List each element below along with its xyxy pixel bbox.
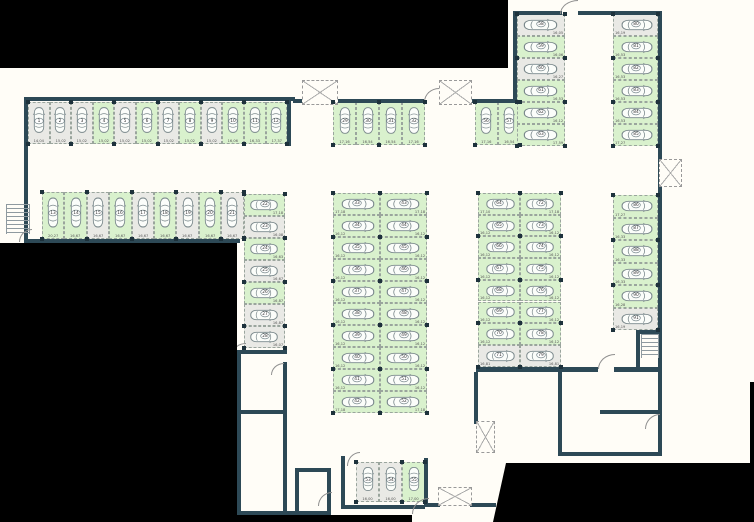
column-marker <box>285 100 289 104</box>
parking-space-79[interactable]: 7916,81 <box>520 345 561 367</box>
parking-space-34[interactable]: 3416,12 <box>333 215 380 237</box>
parking-space-26[interactable]: 2616,87 <box>244 282 285 304</box>
parking-space-75[interactable]: 7516,12 <box>520 258 561 280</box>
parking-space-87[interactable]: 8716,33 <box>613 218 658 241</box>
column-marker <box>656 193 660 197</box>
column-marker <box>283 236 287 240</box>
space-number: 67 <box>494 265 503 271</box>
masked-region <box>493 463 754 522</box>
space-dimension: 16,12 <box>480 319 490 323</box>
column-marker <box>515 100 519 104</box>
space-number: 64 <box>494 200 503 206</box>
column-marker <box>425 323 429 327</box>
parking-space-48[interactable]: 4816,12 <box>380 303 427 325</box>
space-dimension: 15,02 <box>163 139 175 143</box>
column-marker <box>563 144 567 148</box>
space-number: 1 <box>34 118 43 124</box>
parking-space-47[interactable]: 4716,12 <box>380 281 427 303</box>
column-marker <box>283 346 287 350</box>
parking-space-16[interactable]: 1616,67 <box>109 192 131 239</box>
space-number: 55 <box>409 477 418 483</box>
space-number: 41 <box>352 376 361 382</box>
parking-space-37[interactable]: 3716,12 <box>333 281 380 303</box>
parking-space-40[interactable]: 4016,12 <box>333 347 380 369</box>
wall <box>295 468 329 472</box>
space-dimension: 17,10 <box>480 210 490 214</box>
section-col-80-85: 8016,198116,538216,538316,538416,538517,… <box>613 14 658 146</box>
parking-space-25[interactable]: 2516,67 <box>244 260 285 282</box>
column-marker <box>112 142 116 146</box>
space-dimension: 16,12 <box>415 364 425 368</box>
parking-space-38[interactable]: 3816,12 <box>333 303 380 325</box>
parking-space-83[interactable]: 8316,53 <box>613 80 658 102</box>
column-marker <box>423 100 427 104</box>
space-dimension: 16,27 <box>553 75 563 79</box>
space-dimension: 17,18 <box>273 211 283 215</box>
column-marker <box>611 144 615 148</box>
parking-space-21[interactable]: 2116,67 <box>221 192 243 239</box>
space-number: 86 <box>631 202 640 208</box>
space-dimension: 16,12 <box>480 275 490 279</box>
space-dimension: 15,02 <box>141 139 153 143</box>
column-marker <box>378 235 382 239</box>
column-marker <box>26 142 30 146</box>
parking-space-72[interactable]: 7217,18 <box>520 193 561 215</box>
parking-space-23[interactable]: 2316,08 <box>244 216 285 238</box>
column-marker <box>423 500 427 504</box>
column-marker <box>378 411 382 415</box>
column-marker <box>242 346 246 350</box>
parking-space-70[interactable]: 7016,12 <box>478 323 520 345</box>
space-number: 53 <box>363 477 372 483</box>
space-dimension: 16,08 <box>273 233 283 237</box>
space-number: 85 <box>631 131 640 137</box>
space-number: 23 <box>260 223 269 229</box>
parking-space-6[interactable]: 615,02 <box>136 102 158 144</box>
parking-space-50[interactable]: 5016,12 <box>380 347 427 369</box>
column-marker <box>130 237 134 241</box>
space-dimension: 16,12 <box>335 254 345 258</box>
parking-space-54[interactable]: 5416,00 <box>379 462 402 502</box>
space-dimension: 16,67 <box>69 234 81 238</box>
column-marker <box>656 12 660 16</box>
wall <box>295 468 299 515</box>
wall <box>283 362 287 515</box>
column-marker <box>559 365 563 369</box>
parking-space-73[interactable]: 7316,12 <box>520 215 561 237</box>
space-dimension: 16,12 <box>549 232 559 236</box>
space-number: 88 <box>631 247 640 253</box>
parking-space-89[interactable]: 8916,33 <box>613 263 658 286</box>
column-marker <box>285 142 289 146</box>
parking-space-1[interactable]: 114,04 <box>28 102 50 144</box>
space-dimension: 17,59 <box>553 141 563 145</box>
parking-space-29[interactable]: 2917,16 <box>333 102 356 145</box>
column-marker <box>242 324 246 328</box>
parking-space-77[interactable]: 7716,12 <box>520 302 561 324</box>
parking-space-69[interactable]: 6916,12 <box>478 302 520 324</box>
space-dimension: 16,12 <box>415 386 425 390</box>
column-marker <box>473 143 477 147</box>
section-row-29-32: 2917,163016,543116,543217,16 <box>333 102 425 145</box>
column-marker <box>476 365 480 369</box>
column-marker <box>331 143 335 147</box>
wall <box>470 503 496 507</box>
space-dimension: 15,02 <box>98 139 110 143</box>
space-number: 34 <box>352 222 361 228</box>
wall <box>558 372 562 454</box>
space-dimension: 17,37 <box>271 139 283 143</box>
column-marker <box>378 323 382 327</box>
parking-space-35[interactable]: 3516,12 <box>333 237 380 259</box>
parking-space-45[interactable]: 4516,12 <box>380 237 427 259</box>
space-number: 44 <box>399 222 408 228</box>
space-dimension: 16,12 <box>335 232 345 236</box>
space-dimension: 16,67 <box>92 234 104 238</box>
parking-space-24[interactable]: 2416,63 <box>244 238 285 260</box>
space-dimension: 15,02 <box>55 139 67 143</box>
parking-space-43[interactable]: 4317,18 <box>380 193 427 215</box>
space-dimension: 15,02 <box>119 139 131 143</box>
door-arc <box>645 414 660 429</box>
space-number: 83 <box>631 87 640 93</box>
column-marker <box>331 367 335 371</box>
space-number: 51 <box>399 376 408 382</box>
column-marker <box>611 12 615 16</box>
wall <box>470 99 517 103</box>
wall <box>237 350 241 515</box>
space-dimension: 17,18 <box>335 210 345 214</box>
parking-space-91[interactable]: 9116,19 <box>613 308 658 331</box>
space-number: 8 <box>185 118 194 124</box>
space-dimension: 14,04 <box>33 139 45 143</box>
space-number: 90 <box>631 292 640 298</box>
parking-space-10[interactable]: 1016,06 <box>222 102 244 144</box>
space-number: 43 <box>399 200 408 206</box>
space-number: 49 <box>399 332 408 338</box>
parking-space-76[interactable]: 7616,12 <box>520 280 561 302</box>
section-col-43-52: 4317,184416,124516,124616,124716,124816,… <box>380 193 427 413</box>
space-dimension: 16,12 <box>415 320 425 324</box>
space-dimension: 16,81 <box>549 362 559 366</box>
parking-space-4[interactable]: 415,02 <box>93 102 115 144</box>
column-marker <box>26 100 30 104</box>
space-number: 79 <box>536 352 545 358</box>
parking-space-62[interactable]: 6216,12 <box>517 102 565 124</box>
wall <box>341 456 345 509</box>
column-marker <box>112 100 116 104</box>
parking-space-31[interactable]: 3116,54 <box>379 102 402 145</box>
column-marker <box>656 100 660 104</box>
parking-space-81[interactable]: 8116,53 <box>613 36 658 58</box>
door-arc <box>318 492 332 506</box>
parking-space-71[interactable]: 7116,81 <box>478 345 520 367</box>
column-marker <box>425 279 429 283</box>
column-marker <box>476 191 480 195</box>
column-marker <box>331 191 335 195</box>
space-dimension: 16,67 <box>159 234 171 238</box>
parking-space-74[interactable]: 7416,12 <box>520 236 561 258</box>
parking-space-82[interactable]: 8216,53 <box>613 58 658 80</box>
column-marker <box>354 460 358 464</box>
parking-space-66[interactable]: 6616,12 <box>478 236 520 258</box>
parking-space-41[interactable]: 4116,12 <box>333 369 380 391</box>
parking-space-15[interactable]: 1516,67 <box>87 192 109 239</box>
column-marker <box>219 237 223 241</box>
parking-space-33[interactable]: 3317,18 <box>333 193 380 215</box>
parking-space-17[interactable]: 1716,67 <box>132 192 154 239</box>
space-number: 84 <box>631 109 640 115</box>
space-dimension: 16,00 <box>384 497 397 501</box>
column-marker <box>174 190 178 194</box>
space-number: 91 <box>631 314 640 320</box>
parking-space-59[interactable]: 5916,06 <box>517 36 565 58</box>
space-dimension: 16,53 <box>615 53 625 57</box>
space-dimension: 16,67 <box>226 234 238 238</box>
space-dimension: 16,12 <box>480 340 490 344</box>
parking-space-12[interactable]: 1217,37 <box>266 102 288 144</box>
parking-space-32[interactable]: 3217,16 <box>402 102 425 145</box>
column-marker <box>85 237 89 241</box>
column-marker <box>611 328 615 332</box>
space-dimension: 16,12 <box>335 298 345 302</box>
space-dimension: 16,12 <box>415 254 425 258</box>
space-dimension: 16,12 <box>415 232 425 236</box>
space-dimension: 16,54 <box>503 140 515 144</box>
column-marker <box>518 234 522 238</box>
parking-space-64[interactable]: 6417,10 <box>478 193 520 215</box>
parking-space-14[interactable]: 1416,67 <box>64 192 86 239</box>
space-dimension: 16,12 <box>480 297 490 301</box>
space-dimension: 16,12 <box>549 275 559 279</box>
column-marker <box>283 192 287 196</box>
column-marker <box>242 236 246 240</box>
column-marker <box>40 237 44 241</box>
space-number: 78 <box>536 330 545 336</box>
column-marker <box>563 100 567 104</box>
elevator-shaft-icon <box>476 421 495 453</box>
column-marker <box>331 100 335 104</box>
parking-space-30[interactable]: 3016,54 <box>356 102 379 145</box>
column-marker <box>559 321 563 325</box>
wall <box>578 11 662 15</box>
masked-region <box>0 0 508 68</box>
space-number: 22 <box>260 201 269 207</box>
masked-region <box>750 382 754 467</box>
masked-region <box>0 243 237 515</box>
column-marker <box>559 278 563 282</box>
space-number: 70 <box>494 330 503 336</box>
space-dimension: 16,12 <box>415 276 425 280</box>
column-marker <box>400 500 404 504</box>
space-dimension: 16,53 <box>615 119 625 123</box>
space-number: 50 <box>399 354 408 360</box>
column-marker <box>476 321 480 325</box>
space-dimension: 16,12 <box>549 297 559 301</box>
parking-space-61[interactable]: 6116,53 <box>517 80 565 102</box>
space-dimension: 16,12 <box>335 276 345 280</box>
space-number: 37 <box>352 288 361 294</box>
parking-space-52[interactable]: 5217,18 <box>380 391 427 413</box>
space-dimension: 17,18 <box>415 210 425 214</box>
parking-space-56[interactable]: 5617,16 <box>475 102 498 145</box>
space-dimension: 16,12 <box>415 342 425 346</box>
wall <box>558 452 662 456</box>
space-dimension: 17,27 <box>615 141 625 145</box>
parking-space-86[interactable]: 8617,27 <box>613 195 658 218</box>
space-dimension: 16,12 <box>549 319 559 323</box>
wall <box>287 97 291 146</box>
space-number: 25 <box>260 267 269 273</box>
elevator-shaft-icon <box>438 487 472 506</box>
space-dimension: 16,53 <box>615 97 625 101</box>
parking-space-42[interactable]: 4217,18 <box>333 391 380 413</box>
space-dimension: 16,12 <box>480 253 490 257</box>
space-dimension: 20,27 <box>47 234 59 238</box>
space-dimension: 16,19 <box>615 31 625 35</box>
space-dimension: 16,12 <box>335 342 345 346</box>
section-row-1-12: 114,04215,02315,02415,02515,02615,02715,… <box>28 102 287 144</box>
column-marker <box>518 365 522 369</box>
space-number: 89 <box>631 269 640 275</box>
parking-space-44[interactable]: 4416,12 <box>380 215 427 237</box>
elevator-shaft-icon <box>439 80 472 105</box>
column-marker <box>518 278 522 282</box>
parking-space-49[interactable]: 4916,12 <box>380 325 427 347</box>
space-dimension: 16,06 <box>553 53 563 57</box>
space-dimension: 17,18 <box>415 408 425 412</box>
space-dimension: 16,12 <box>553 119 563 123</box>
wall <box>474 372 478 424</box>
parking-space-3[interactable]: 315,02 <box>71 102 93 144</box>
space-number: 65 <box>494 221 503 227</box>
column-marker <box>656 328 660 332</box>
space-number: 38 <box>352 310 361 316</box>
space-number: 58 <box>536 21 545 27</box>
space-dimension: 16,53 <box>553 97 563 101</box>
space-number: 4 <box>99 118 108 124</box>
column-marker <box>611 56 615 60</box>
parking-space-46[interactable]: 4616,12 <box>380 259 427 281</box>
column-marker <box>425 411 429 415</box>
wall <box>658 11 662 372</box>
space-number: 14 <box>71 210 80 216</box>
space-number: 11 <box>250 118 259 124</box>
space-number: 82 <box>631 65 640 71</box>
column-marker <box>156 142 160 146</box>
column-marker <box>242 100 246 104</box>
parking-space-85[interactable]: 8517,27 <box>613 124 658 146</box>
parking-space-27[interactable]: 2716,87 <box>244 304 285 326</box>
column-marker <box>242 142 246 146</box>
space-dimension: 17,16 <box>480 140 492 144</box>
column-marker <box>611 238 615 242</box>
column-marker <box>85 190 89 194</box>
space-number: 68 <box>494 286 503 292</box>
wall <box>513 11 562 15</box>
parking-space-7[interactable]: 715,02 <box>158 102 180 144</box>
space-dimension: 16,12 <box>549 253 559 257</box>
column-marker <box>377 100 381 104</box>
parking-space-36[interactable]: 3616,12 <box>333 259 380 281</box>
parking-space-9[interactable]: 915,02 <box>201 102 223 144</box>
parking-space-53[interactable]: 5316,00 <box>356 462 379 502</box>
column-marker <box>425 191 429 195</box>
column-marker <box>423 460 427 464</box>
space-number: 62 <box>536 109 545 115</box>
space-dimension: 16,67 <box>137 234 149 238</box>
column-marker <box>242 192 246 196</box>
parking-space-78[interactable]: 7816,12 <box>520 323 561 345</box>
space-dimension: 16,67 <box>114 234 126 238</box>
parking-space-22[interactable]: 2217,18 <box>244 194 285 216</box>
space-dimension: 16,33 <box>615 258 625 262</box>
parking-space-51[interactable]: 5116,12 <box>380 369 427 391</box>
parking-space-13[interactable]: 1320,27 <box>42 192 64 239</box>
space-number: 19 <box>183 210 192 216</box>
parking-space-39[interactable]: 3916,12 <box>333 325 380 347</box>
column-marker <box>423 143 427 147</box>
parking-space-60[interactable]: 6016,27 <box>517 58 565 80</box>
parking-space-84[interactable]: 8416,53 <box>613 102 658 124</box>
section-col-33-42: 3317,183416,123516,123616,123716,123816,… <box>333 193 380 413</box>
space-dimension: 15,02 <box>76 139 88 143</box>
space-number: 39 <box>352 332 361 338</box>
space-dimension: 16,53 <box>615 75 625 79</box>
space-number: 33 <box>352 200 361 206</box>
parking-space-5[interactable]: 515,02 <box>114 102 136 144</box>
space-number: 3 <box>77 118 86 124</box>
column-marker <box>515 12 519 16</box>
parking-space-2[interactable]: 215,02 <box>50 102 72 144</box>
column-marker <box>563 12 567 16</box>
space-dimension: 15,02 <box>206 139 218 143</box>
parking-space-65[interactable]: 6516,12 <box>478 215 520 237</box>
column-marker <box>518 191 522 195</box>
column-marker <box>425 367 429 371</box>
parking-space-90[interactable]: 9016,28 <box>613 285 658 308</box>
parking-space-80[interactable]: 8016,19 <box>613 14 658 36</box>
space-number: 40 <box>352 354 361 360</box>
parking-space-68[interactable]: 6816,12 <box>478 280 520 302</box>
space-dimension: 16,67 <box>181 234 193 238</box>
elevator-shaft-icon <box>659 159 682 187</box>
parking-space-28[interactable]: 2816,07 <box>244 326 285 348</box>
parking-space-11[interactable]: 1116,33 <box>244 102 266 144</box>
column-marker <box>156 100 160 104</box>
parking-space-88[interactable]: 8816,33 <box>613 240 658 263</box>
column-marker <box>378 279 382 283</box>
parking-space-8[interactable]: 815,02 <box>179 102 201 144</box>
section-col-86-91: 8617,278716,338816,338916,339016,289116,… <box>613 195 658 330</box>
space-dimension: 16,81 <box>480 362 490 366</box>
section-col-64-71: 6417,106516,126616,126716,126816,126916,… <box>478 193 520 367</box>
parking-space-19[interactable]: 1916,67 <box>176 192 198 239</box>
parking-space-67[interactable]: 6716,12 <box>478 258 520 280</box>
parking-space-55[interactable]: 5517,00 <box>402 462 425 502</box>
parking-space-20[interactable]: 2016,67 <box>199 192 221 239</box>
column-marker <box>611 100 615 104</box>
wall <box>476 367 598 372</box>
column-marker <box>40 190 44 194</box>
parking-space-18[interactable]: 1816,67 <box>154 192 176 239</box>
parking-space-63[interactable]: 6317,59 <box>517 124 565 146</box>
space-dimension: 17,16 <box>407 140 420 144</box>
column-marker <box>559 191 563 195</box>
parking-space-58[interactable]: 5816,05 <box>517 14 565 36</box>
space-dimension: 16,12 <box>335 386 345 390</box>
space-number: 27 <box>260 311 269 317</box>
